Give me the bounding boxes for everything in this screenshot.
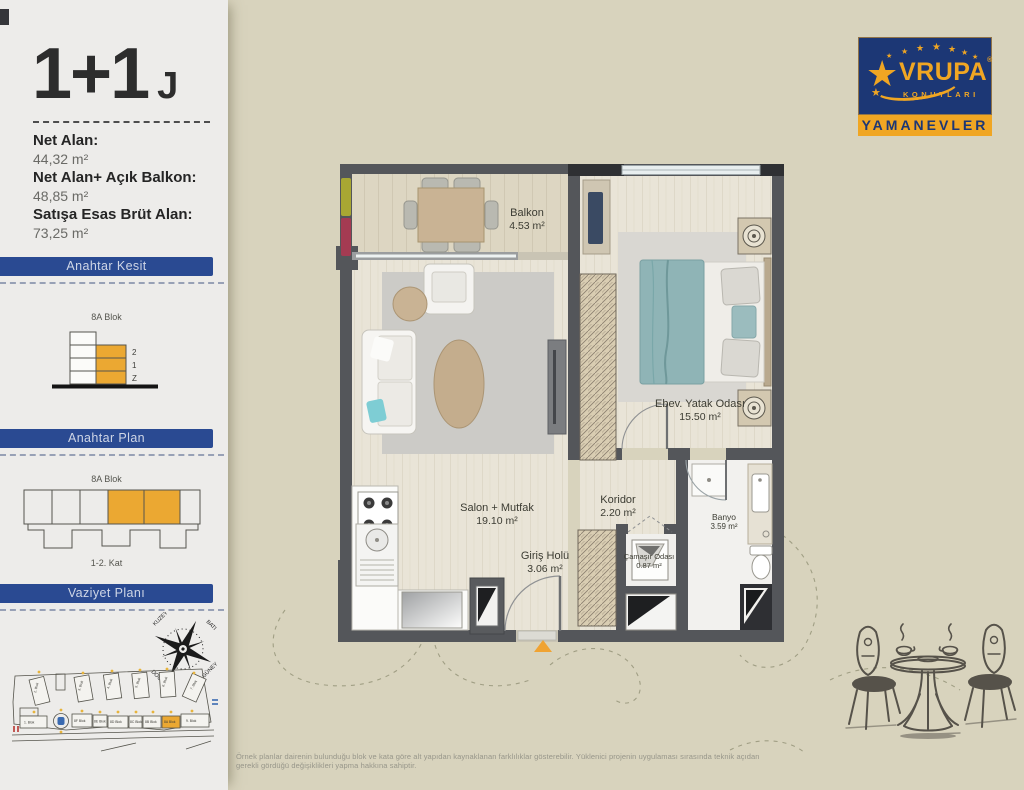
kesit-highlight-floor — [96, 371, 126, 384]
kesit-floor-top — [70, 332, 96, 345]
wall — [616, 524, 628, 534]
flower-box — [341, 218, 351, 256]
kat-label: 1-2. Kat — [0, 558, 213, 568]
wall — [676, 460, 688, 642]
banner-divider — [0, 609, 224, 611]
bedroom-wardrobe — [580, 274, 616, 460]
compass-label: BATI — [205, 619, 218, 632]
nightstand — [738, 218, 771, 254]
toilet — [750, 546, 772, 579]
site-block-label: 1. Blok — [24, 721, 35, 725]
star-icon: ★ — [948, 44, 956, 55]
accent-pillow — [732, 306, 756, 338]
brochure-page: 1+1J Net Alan: 44,32 m² Net Alan+ Açık B… — [0, 0, 1024, 790]
wall — [772, 164, 784, 642]
brand-logo: ★ ★ ★ ★ ★ ★ ★ ★ ★ VRUPA® KONUTLARI YAMAN… — [858, 37, 992, 136]
area-label: Satışa Esas Brüt Alan: — [33, 205, 218, 224]
section-banner-vaziyet: Vaziyet Planı — [0, 584, 213, 603]
bed — [640, 258, 771, 386]
dresser-tv — [588, 192, 603, 244]
title-divider — [33, 121, 210, 123]
room-label-camasir-odasi: Çamaşır Odası 0.87 m² — [623, 552, 675, 570]
area-value: 73,25 m² — [33, 224, 218, 242]
area-label: Net Alan+ Açık Balkon: — [33, 168, 218, 187]
headboard — [764, 258, 771, 386]
flower-box — [341, 178, 351, 216]
site-block-label: 8C Blok — [130, 720, 142, 724]
wall — [668, 448, 690, 460]
fridge — [402, 592, 462, 628]
balcony-door-opening — [518, 252, 568, 260]
area-value: 44,32 m² — [33, 150, 218, 168]
registered-mark: ® — [987, 57, 993, 64]
hall-wardrobe — [578, 530, 616, 626]
kesit-floor-label: 1 — [132, 361, 137, 370]
room-label-banyo: Banyo 3.59 m² — [710, 512, 737, 532]
wall — [340, 164, 568, 174]
site-block-label: 8F Blok — [74, 719, 86, 723]
sidebar: 1+1J Net Alan: 44,32 m² Net Alan+ Açık B… — [0, 0, 228, 790]
pillow — [721, 267, 760, 305]
wall — [726, 448, 784, 460]
dining-table-set — [404, 178, 498, 252]
page-title: 1+1J — [32, 38, 178, 110]
corner-tab — [0, 9, 9, 25]
bed-blanket — [640, 260, 704, 384]
bathroom-vanity — [748, 464, 772, 544]
logo-navy-panel: ★ ★ ★ ★ ★ ★ ★ ★ ★ VRUPA® KONUTLARI — [858, 37, 992, 115]
kesit-floor-label: 2 — [132, 348, 137, 357]
area-summary: Net Alan: 44,32 m² Net Alan+ Açık Balkon… — [33, 131, 218, 242]
bistro-sketch — [838, 612, 1018, 747]
room-label-salon-mutfak: Salon + Mutfak 19.10 m² — [460, 501, 534, 528]
banner-divider — [0, 454, 224, 456]
armchair — [424, 264, 474, 314]
unit-code-text: J — [157, 65, 178, 107]
room-label-yatak-odasi: Ebev. Yatak Odası 15.50 m² — [655, 397, 745, 424]
footer-disclaimer: Örnek planlar dairenin bulunduğu blok ve… — [236, 752, 776, 770]
star-icon: ★ — [961, 48, 968, 57]
room-label-giris-holu: Giriş Holü 3.06 m² — [521, 549, 569, 576]
star-icon: ★ — [916, 43, 924, 54]
plan-highlight-unit — [108, 490, 144, 524]
plan-highlight-unit — [144, 490, 180, 524]
plan-lower-wing — [28, 524, 198, 548]
logo-brand-text: VRUPA® — [899, 57, 993, 87]
dresser — [583, 180, 610, 254]
kitchen-sink — [356, 524, 398, 586]
room-label-balkon: Balkon 4.53 m² — [509, 206, 545, 233]
site-pool-icon — [58, 717, 65, 725]
logo-project-band: YAMANEVLER — [858, 115, 992, 136]
balcony-glazing — [356, 255, 516, 258]
room-label-koridor: Koridor 2.20 m² — [600, 493, 636, 520]
area-label: Net Alan: — [33, 131, 218, 150]
unit-type-text: 1+1 — [32, 34, 148, 114]
wall — [616, 524, 626, 630]
site-block-label: 8D Blok — [110, 720, 122, 724]
star-icon: ★ — [901, 47, 908, 56]
kesit-floor-label: Z — [132, 374, 137, 383]
laundry-cabinet — [626, 594, 676, 630]
site-block-label: 9. Blok — [186, 719, 197, 723]
pillow — [721, 339, 760, 377]
kesit-highlight-floor — [96, 345, 126, 358]
section-diagram: 2 1 Z — [40, 328, 170, 402]
kesit-block-label: 8A Blok — [0, 312, 213, 322]
tv-screen — [553, 350, 556, 424]
side-table — [393, 287, 427, 321]
bathroom-shaft — [740, 584, 772, 630]
wall — [616, 586, 676, 594]
wall — [340, 630, 784, 642]
hall-cabinet — [470, 578, 504, 634]
site-block-label: 8B Blok — [145, 720, 157, 724]
sofa — [362, 330, 416, 434]
wall — [664, 524, 676, 534]
wall-dark — [760, 164, 784, 176]
banner-divider — [0, 282, 224, 284]
compass-label: KUZEY — [152, 612, 169, 627]
section-banner-anahtar-plan: Anahtar Plan — [0, 429, 213, 448]
plan-block-label: 8A Blok — [0, 474, 213, 484]
logo-sub-text: KONUTLARI — [903, 90, 979, 99]
site-block-label: 8A Blok — [164, 720, 176, 724]
coffee-table — [434, 340, 484, 428]
kesit-highlight-floor — [96, 358, 126, 371]
tv-unit — [548, 340, 566, 434]
entrance-threshold — [518, 631, 556, 640]
wall-dark — [568, 164, 624, 176]
shower — [686, 460, 726, 500]
site-plan-diagram: 2. Blok 3. Blok 4. Blok 5. Blok 6. Blok … — [6, 664, 220, 756]
site-block-label: 8E Blok — [94, 720, 106, 724]
star-icon: ★ — [932, 42, 941, 53]
key-plan-diagram — [16, 488, 208, 554]
wall — [568, 164, 580, 460]
section-banner-anahtar-kesit: Anahtar Kesit — [0, 257, 213, 276]
area-value: 48,85 m² — [33, 187, 218, 205]
